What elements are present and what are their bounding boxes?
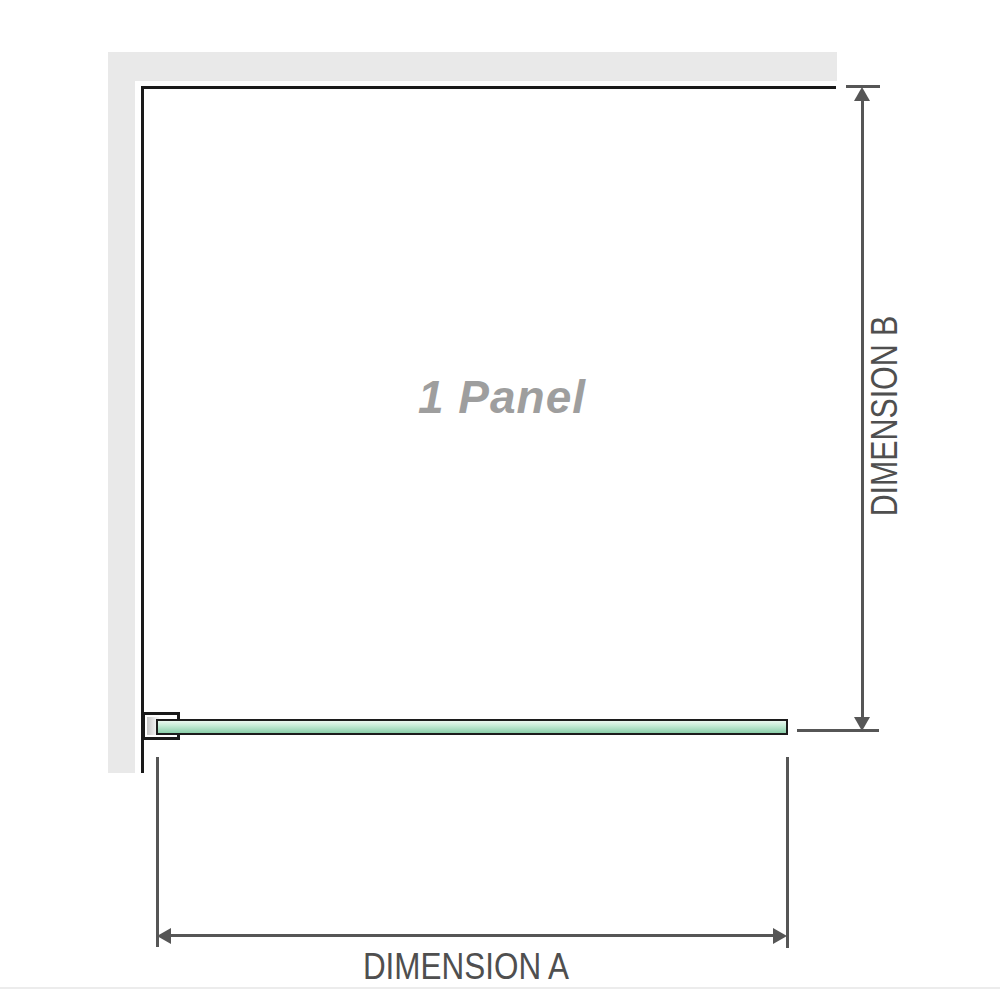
dimension-a-label: DIMENSION A [363, 946, 569, 988]
wall-top [108, 52, 837, 81]
wall-left [108, 52, 135, 773]
glass-panel [156, 719, 788, 735]
panel-dimension-diagram: 1 Panel DIMENSION B DIMENSION A [0, 0, 1000, 1000]
page-baseline-divider [0, 987, 1000, 989]
dimension-a-line [169, 934, 775, 937]
arrow-right-icon [773, 928, 787, 944]
arrow-up-icon [854, 87, 870, 101]
enclosure-frame-top-line [142, 86, 836, 89]
enclosure-frame-left-line [141, 86, 144, 773]
dimension-a-left-extension-line [156, 757, 159, 947]
panel-count-label: 1 Panel [418, 370, 586, 424]
dimension-b-label: DIMENSION B [864, 316, 906, 517]
arrow-left-icon [157, 928, 171, 944]
arrow-down-icon [854, 717, 870, 731]
dimension-a-right-extension-line [786, 757, 789, 948]
